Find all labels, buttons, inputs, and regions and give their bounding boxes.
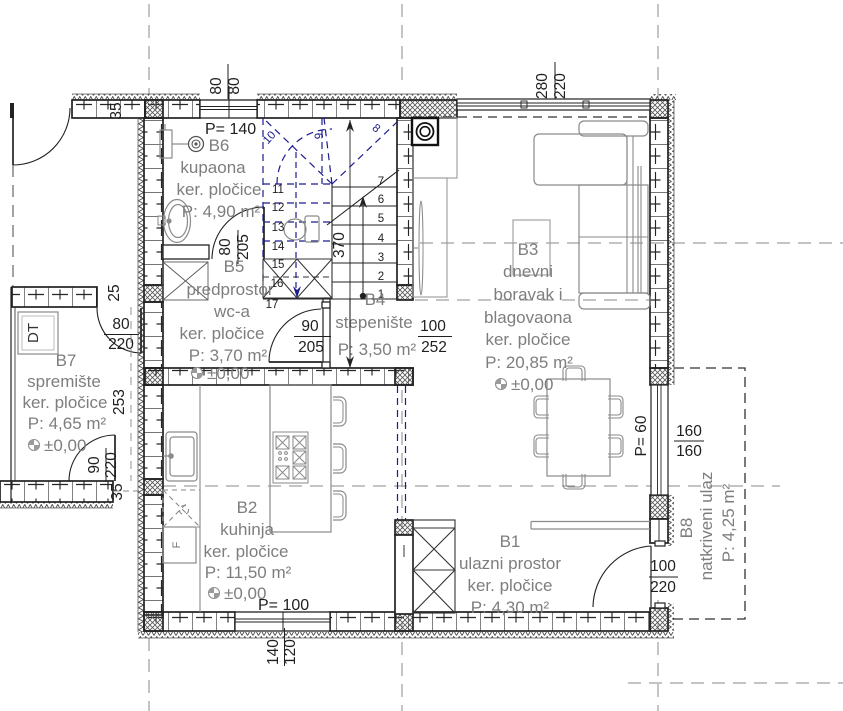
svg-text:P: 20,85 m²: P: 20,85 m² (485, 353, 573, 372)
svg-text:ker. pločice: ker. pločice (176, 180, 261, 199)
svg-text:±0,00: ±0,00 (44, 436, 86, 455)
svg-text:253: 253 (111, 389, 128, 415)
svg-text:12: 12 (272, 202, 285, 214)
svg-text:11: 11 (272, 184, 284, 196)
svg-text:160: 160 (676, 443, 702, 460)
svg-text:P: 4,25 m²: P: 4,25 m² (719, 483, 738, 562)
svg-text:±0,00: ±0,00 (511, 375, 553, 394)
svg-text:7: 7 (378, 176, 384, 188)
svg-text:25: 25 (106, 284, 123, 301)
svg-text:dnevni: dnevni (503, 262, 553, 281)
svg-text:80: 80 (112, 316, 130, 333)
svg-text:35: 35 (109, 483, 126, 500)
svg-text:±0,00: ±0,00 (207, 364, 249, 383)
svg-text:P= 60: P= 60 (633, 415, 650, 456)
svg-text:100: 100 (420, 318, 446, 335)
svg-text:220: 220 (650, 579, 676, 596)
svg-text:220: 220 (108, 336, 134, 353)
svg-text:P: 11,50 m²: P: 11,50 m² (205, 563, 292, 582)
svg-text:90: 90 (86, 456, 103, 474)
svg-text:13: 13 (272, 222, 285, 234)
svg-text:kupaona: kupaona (180, 158, 246, 177)
svg-text:14: 14 (272, 241, 285, 253)
svg-text:6: 6 (378, 194, 384, 206)
svg-text:9: 9 (314, 133, 326, 139)
svg-text:stepenište: stepenište (335, 313, 413, 332)
svg-text:B6: B6 (209, 136, 230, 155)
svg-text:280: 280 (534, 73, 551, 99)
svg-text:205: 205 (298, 339, 324, 356)
svg-text:B5: B5 (224, 257, 245, 276)
svg-text:F: F (171, 541, 183, 548)
svg-text:80: 80 (217, 238, 234, 256)
svg-text:B2: B2 (237, 498, 258, 517)
svg-text:ker. pločice: ker. pločice (467, 576, 552, 595)
svg-text:kuhinja: kuhinja (220, 520, 274, 539)
svg-text:100: 100 (650, 558, 676, 575)
svg-text:wc-a: wc-a (213, 302, 250, 321)
svg-text:15: 15 (272, 259, 285, 271)
svg-text:spremište: spremište (27, 372, 101, 391)
svg-text:3: 3 (378, 252, 384, 264)
svg-text:370: 370 (331, 232, 348, 258)
svg-text:5: 5 (378, 213, 384, 225)
svg-text:B3: B3 (518, 240, 539, 259)
svg-text:4: 4 (378, 233, 385, 245)
svg-text:ker. pločice: ker. pločice (22, 393, 107, 412)
svg-text:±0,00: ±0,00 (224, 584, 266, 603)
svg-text:ker. pločice: ker. pločice (179, 324, 264, 343)
svg-text:B1: B1 (500, 532, 521, 551)
svg-text:boravak i: boravak i (494, 285, 563, 304)
svg-text:blagovaona: blagovaona (484, 308, 572, 327)
svg-text:35: 35 (108, 102, 125, 119)
svg-text:P: 3,70 m²: P: 3,70 m² (189, 346, 268, 365)
svg-text:80: 80 (226, 77, 243, 95)
svg-text:252: 252 (421, 339, 447, 356)
svg-text:B8: B8 (677, 518, 696, 539)
svg-text:ker. pločice: ker. pločice (485, 330, 570, 349)
svg-text:ker. pločice: ker. pločice (203, 542, 288, 561)
svg-text:90: 90 (301, 318, 319, 335)
svg-text:natkriveni ulaz: natkriveni ulaz (697, 472, 716, 581)
svg-text:140: 140 (265, 639, 282, 665)
svg-text:80: 80 (208, 77, 225, 95)
svg-text:P: 4,65 m²: P: 4,65 m² (28, 414, 107, 433)
svg-text:B4: B4 (365, 290, 386, 309)
svg-text:DT: DT (25, 323, 42, 343)
svg-text:160: 160 (676, 423, 702, 440)
svg-text:P: 4,90 m²: P: 4,90 m² (182, 202, 261, 221)
svg-text:ulazni prostor: ulazni prostor (459, 554, 561, 573)
svg-text:2: 2 (378, 271, 384, 283)
svg-text:17: 17 (266, 299, 279, 311)
svg-text:B7: B7 (56, 351, 77, 370)
svg-text:predprostor: predprostor (187, 280, 274, 299)
svg-text:P: 4,30 m²: P: 4,30 m² (471, 598, 550, 617)
